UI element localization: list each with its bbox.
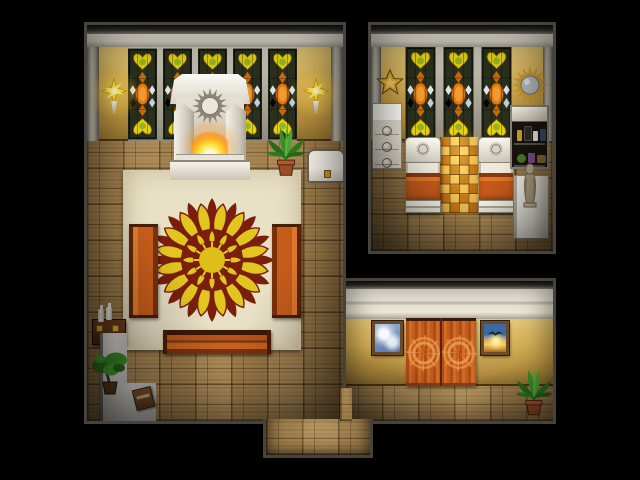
dresser-medallion bbox=[382, 158, 392, 168]
cornice bbox=[371, 34, 553, 48]
passage-shade bbox=[266, 419, 370, 455]
stained-glass-window-icon bbox=[481, 47, 512, 141]
stained-glass-window-icon bbox=[405, 47, 436, 141]
altar-base bbox=[170, 160, 250, 180]
sun-medallion-icon bbox=[488, 141, 504, 157]
altar[interactable] bbox=[168, 74, 252, 178]
curtain-panel[interactable] bbox=[406, 318, 441, 386]
floor-junction bbox=[340, 388, 352, 421]
green-orb bbox=[517, 154, 526, 163]
sun-mirror-icon[interactable] bbox=[510, 65, 550, 105]
window-row bbox=[405, 47, 512, 141]
chest[interactable] bbox=[307, 149, 343, 183]
sanctuary-room bbox=[84, 22, 346, 424]
hallway bbox=[346, 278, 556, 424]
bird-icon bbox=[487, 329, 504, 338]
hall-cornice bbox=[346, 289, 553, 321]
bed-west[interactable] bbox=[405, 137, 441, 213]
purple-flask bbox=[528, 153, 535, 163]
small-box bbox=[537, 155, 546, 163]
cornice bbox=[87, 34, 343, 48]
sun-medallion-icon bbox=[191, 87, 229, 125]
torch-flame-icon bbox=[100, 77, 128, 105]
bench-south[interactable] bbox=[163, 330, 271, 354]
wall-cap bbox=[87, 25, 343, 34]
blanket bbox=[479, 173, 513, 200]
wall-cap bbox=[371, 25, 553, 34]
bench-west[interactable] bbox=[129, 224, 158, 318]
bonsai-icon bbox=[91, 347, 131, 397]
curtain-panel[interactable] bbox=[441, 318, 476, 386]
white-bottle[interactable] bbox=[98, 309, 104, 322]
wall-cap bbox=[346, 281, 553, 289]
painting-clouds bbox=[372, 321, 403, 355]
stained-glass-window-icon bbox=[443, 47, 474, 141]
black-bottle bbox=[524, 126, 532, 141]
bench-east[interactable] bbox=[272, 224, 301, 318]
footboard bbox=[478, 200, 514, 213]
potted-palm-icon bbox=[267, 111, 305, 179]
footboard bbox=[405, 200, 441, 213]
exit-passage[interactable] bbox=[263, 419, 373, 458]
blue-bottle bbox=[540, 129, 546, 141]
bedroom bbox=[368, 22, 556, 254]
gold-mosaic bbox=[440, 137, 478, 213]
sun-mandala-icon bbox=[148, 196, 276, 324]
potion-shelf[interactable] bbox=[510, 105, 549, 169]
blanket bbox=[406, 173, 440, 200]
sun-medallion-icon bbox=[415, 141, 431, 157]
torch-flame-icon bbox=[302, 77, 330, 105]
offering-cup bbox=[112, 325, 119, 332]
door-curtains[interactable] bbox=[406, 318, 476, 386]
mattress bbox=[406, 163, 440, 173]
wall-sconce bbox=[97, 75, 131, 127]
painting-sunset bbox=[481, 321, 509, 355]
amber-jar bbox=[517, 130, 522, 141]
mattress bbox=[479, 163, 513, 173]
curtain-sun-emblem bbox=[406, 335, 442, 371]
white-jar bbox=[533, 131, 538, 141]
shelf-row bbox=[514, 123, 545, 145]
statue-icon[interactable] bbox=[519, 163, 541, 209]
dresser[interactable] bbox=[372, 103, 402, 169]
dresser-medallion bbox=[382, 142, 392, 152]
game-viewport bbox=[0, 0, 640, 480]
curtain-sun-emblem bbox=[441, 335, 477, 371]
gold-star-icon bbox=[375, 67, 405, 99]
bed-east[interactable] bbox=[478, 137, 514, 213]
potted-palm-icon bbox=[516, 353, 552, 419]
white-bottle[interactable] bbox=[106, 307, 112, 320]
offering-cup bbox=[96, 325, 103, 332]
chest-clasp bbox=[324, 170, 331, 178]
dresser-medallion bbox=[382, 126, 392, 136]
shelf-top bbox=[512, 107, 547, 122]
curtain-seam bbox=[440, 318, 442, 386]
